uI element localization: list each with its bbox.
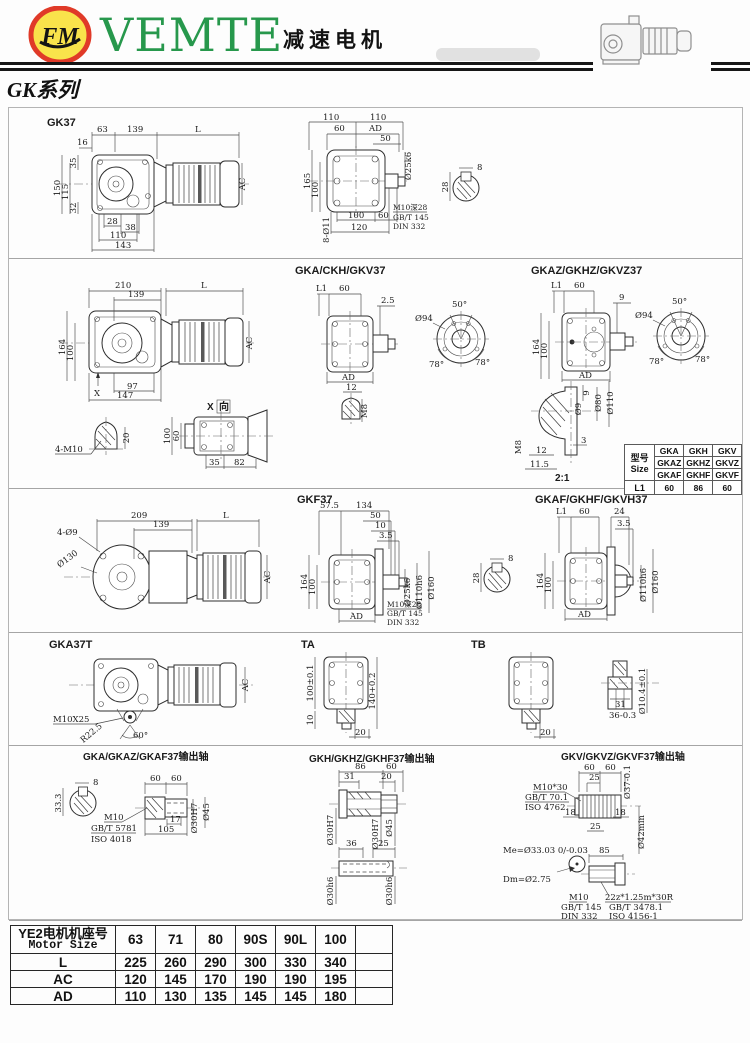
- gkaz37-front-view: L1 60 9 164 100 AD: [532, 281, 637, 382]
- note: M10: [104, 813, 124, 823]
- table-row: AD 110 130 135 145 145 180: [11, 988, 393, 1005]
- dim: 60: [605, 763, 616, 773]
- dim: 33.3: [54, 794, 64, 813]
- dim: 8-Ø11: [321, 217, 332, 243]
- drawing-title: GKA/GKAZ/GKAF37输出轴: [83, 750, 209, 763]
- dim: Ø9: [573, 403, 584, 415]
- dim: Ø30H7: [189, 803, 200, 834]
- dim: 86: [355, 762, 366, 772]
- dim: 10: [306, 715, 316, 726]
- x-direction-view: X 向 100 60 35 82: [163, 400, 273, 469]
- value-cell: 135: [196, 988, 236, 1005]
- table-row: L 225 260 290 300 330 340: [11, 954, 393, 971]
- note: GB/T 5781: [91, 824, 137, 834]
- value-cell: 110: [116, 988, 156, 1005]
- dim: 139: [153, 520, 169, 530]
- empty-cell: [356, 926, 393, 954]
- dim: 100: [311, 182, 321, 198]
- note: M10: [569, 893, 589, 903]
- dim: 9: [582, 390, 592, 395]
- section-output-shafts: GKA/GKAZ/GKAF37输出轴 GKH/GKHZ/GKHF37输出轴 GK…: [9, 746, 742, 921]
- dim: 140+0.2: [368, 673, 378, 710]
- motor-table-header: YE2电机机座号Motor Size: [11, 926, 116, 954]
- drawing-title: GKA/CKH/GKV37: [295, 265, 385, 277]
- tb-view: 20: [509, 652, 556, 739]
- dim: 20: [381, 772, 392, 782]
- motor-size-table: YE2电机机座号Motor Size 63 71 80 90S 90L 100 …: [10, 925, 393, 1005]
- dim: AC: [238, 178, 248, 192]
- dim: 8: [508, 554, 513, 564]
- value-cell: 225: [116, 954, 156, 971]
- drawing-title: GKH/GKHZ/GKHF37输出轴: [309, 752, 435, 765]
- dim: 4-Ø9: [57, 527, 78, 538]
- shaft-a-drawing: 8 33.3 60 60 17 105 Ø30H7 Ø45 M10: [54, 774, 212, 845]
- motor-size-col: 100: [316, 926, 356, 954]
- dim: 50°: [452, 300, 467, 310]
- dim: 100: [348, 211, 364, 221]
- dim: 3: [581, 436, 586, 446]
- drawings-frame: GK37 63 139 L: [8, 107, 743, 920]
- dim: 100: [308, 579, 318, 595]
- dim: R22.5: [79, 721, 105, 745]
- drawing-title: GKAZ/GKHZ/GKVZ37: [531, 265, 642, 277]
- dim: 12: [536, 446, 547, 456]
- dim: 50°: [672, 297, 687, 307]
- size-cell: GKA: [655, 445, 684, 457]
- dim: Ø30h6: [384, 877, 395, 906]
- dim: Ø25k6: [403, 152, 414, 180]
- value-cell: 290: [196, 954, 236, 971]
- size-cell: GKHZ: [684, 457, 713, 469]
- dim: Ø80: [593, 394, 604, 412]
- dim: Ø30h6: [325, 877, 336, 906]
- dim: AC: [263, 571, 273, 585]
- dim: 25: [589, 773, 600, 783]
- dim: Ø45: [201, 803, 212, 821]
- view-label: X: [207, 402, 214, 413]
- dim: AD: [577, 610, 591, 620]
- dim: Ø160: [426, 576, 437, 599]
- dim: 78°: [649, 357, 664, 367]
- dim: 35: [209, 458, 220, 468]
- dim: 38: [125, 223, 136, 233]
- value-cell: 300: [236, 954, 276, 971]
- note: ISO 4156-1: [609, 912, 658, 921]
- dim: 28: [441, 182, 451, 193]
- dim: 35: [69, 158, 79, 169]
- drawing-title: TA: [301, 639, 315, 651]
- note: GB/T 145: [393, 213, 429, 222]
- note: Dm=Ø2.75: [503, 874, 551, 885]
- dim: 60: [584, 763, 595, 773]
- gkf37-flange-view: 57.5 134 50 10 3.5 Ø25k6 Ø110h6 Ø160 164…: [300, 501, 437, 627]
- dim: 20: [540, 728, 551, 738]
- note: GB/T 70.1: [525, 793, 568, 803]
- size-cell: GKVZ: [713, 457, 742, 469]
- dim: AD: [341, 373, 355, 383]
- brand-name: VEMTE: [100, 8, 283, 62]
- dim: AD: [368, 124, 382, 134]
- dim: Ø30H7: [325, 815, 336, 846]
- dim: 60: [150, 774, 161, 784]
- drawing-title: GKA37T: [49, 639, 93, 651]
- dim: 50: [380, 134, 391, 144]
- motor-size-col: 90S: [236, 926, 276, 954]
- dim: 147: [117, 391, 133, 401]
- dim: M10X25: [53, 715, 89, 725]
- size-cell: GKHF: [684, 469, 713, 481]
- note: Me=Ø33.03 0/-0.03: [503, 845, 588, 856]
- dim: 50: [370, 511, 381, 521]
- motor-size-col: 90L: [276, 926, 316, 954]
- dim: M8: [514, 440, 524, 454]
- dim: 115: [61, 184, 71, 200]
- empty-cell: [356, 971, 393, 988]
- dim: Ø130: [55, 548, 80, 571]
- dim: 11.5: [530, 460, 549, 470]
- dim: L1: [556, 507, 567, 517]
- gka37t-side-view: AC M10X25 R22.5 60°: [53, 659, 255, 745]
- dim: Ø110h6: [638, 568, 649, 602]
- dim: Ø110: [605, 391, 616, 414]
- ta-view: 100±0.1 10 140+0.2 20: [306, 652, 378, 739]
- dim: X: [94, 389, 101, 399]
- brand-logo: FM: [28, 6, 92, 64]
- dim: Ø10.4±0.1: [637, 668, 648, 715]
- dim: Ø42min: [636, 814, 647, 849]
- dim: 8: [93, 778, 98, 788]
- note: M10*30: [533, 783, 568, 793]
- series-title: GK系列: [7, 74, 78, 104]
- row-label: AD: [11, 988, 116, 1005]
- value-cell: 145: [156, 971, 196, 988]
- dim: 105: [158, 825, 174, 835]
- dim: AD: [349, 612, 363, 622]
- value-cell: 170: [196, 971, 236, 988]
- gka37-bolt-ring-view: Ø94 50° 78° 78°: [415, 300, 490, 370]
- dim: AD: [578, 371, 592, 381]
- gk37-key-section: 8 28: [441, 163, 482, 201]
- dim: Ø94: [635, 310, 653, 321]
- value-cell: 145: [276, 988, 316, 1005]
- dim: 25: [378, 839, 389, 849]
- row-label: AC: [11, 971, 116, 988]
- m8-plug-detail: 12 M8: [342, 383, 370, 425]
- dim: L: [201, 281, 207, 291]
- dim: 85: [599, 846, 610, 856]
- scan-smudge: [436, 48, 540, 61]
- note: DIN 332: [387, 618, 419, 627]
- dim: 100±0.1: [306, 665, 316, 702]
- gkaz37-bolt-ring-view: Ø94 50° 78° 78°: [635, 297, 710, 367]
- note: M10深28: [393, 203, 427, 212]
- motor-size-col: 80: [196, 926, 236, 954]
- section-gka37: GKA/CKH/GKV37 GKAZ/GKHZ/GKVZ37 210: [9, 259, 742, 489]
- dim: 139: [128, 290, 144, 300]
- value-cell: 195: [316, 971, 356, 988]
- size-table: 型号Size GKAGKHGKV GKAZGKHZGKVZ GKAFGKHFGK…: [624, 444, 742, 495]
- gk37-front-view: 110 110 60 AD 50 Ø25k6 165 100 8-Ø11 100…: [303, 113, 429, 243]
- dim: M8: [360, 404, 370, 418]
- value-cell: 190: [236, 971, 276, 988]
- size-cell: GKH: [684, 445, 713, 457]
- dim: 110: [370, 113, 386, 123]
- doc-title: 减速电机: [283, 24, 387, 54]
- dim: 24: [614, 507, 625, 517]
- drawing-title: GKV/GKVZ/GKVF37输出轴: [561, 750, 685, 763]
- dim: Ø94: [415, 313, 433, 324]
- dim: 20: [122, 433, 132, 444]
- dim: 60: [339, 284, 350, 294]
- gkf37-key-section: 8 28: [472, 554, 513, 592]
- view-label: 向: [219, 400, 229, 413]
- gka37-side-view: 210 139 L 164 100 97 147 X AC: [58, 281, 255, 402]
- size-cell: GKVF: [713, 469, 742, 481]
- dim: 31: [615, 700, 626, 710]
- dim: 36: [346, 839, 357, 849]
- drawing-title: TB: [471, 639, 486, 651]
- row-label: L: [11, 954, 116, 971]
- dim: 12: [346, 383, 357, 393]
- dim: 100: [540, 343, 550, 359]
- dim: 78°: [429, 360, 444, 370]
- size-cell: GKAF: [655, 469, 684, 481]
- dim: 20: [355, 728, 366, 738]
- gk37-side-view: 63 139 L 16 150 115 35 32 28 38 110 143 …: [53, 125, 249, 252]
- dim: 2.5: [381, 296, 395, 306]
- size-table-header: 型号Size: [625, 445, 655, 481]
- dim: 60: [574, 281, 585, 291]
- dim: Ø160: [650, 570, 661, 593]
- dim: 25: [590, 822, 601, 832]
- dim: 60: [334, 124, 345, 134]
- bushing-detail: 31 36-0.3 Ø10.4±0.1: [601, 661, 659, 721]
- dim: 63: [97, 125, 108, 135]
- section-gka37t: GKA37T TA TB AC M10X25: [9, 633, 742, 746]
- dim: L1: [551, 281, 562, 291]
- dim: 139: [127, 125, 143, 135]
- note: DIN 332: [561, 912, 598, 921]
- dim: 60: [171, 774, 182, 784]
- value-cell: 190: [276, 971, 316, 988]
- section-gk37: GK37 63 139 L: [9, 108, 742, 259]
- dim: 36-0.3: [609, 711, 636, 721]
- gkf37-side-view: 209 139 L 4-Ø9 Ø130 AC: [55, 511, 273, 609]
- dim: 9: [619, 293, 624, 303]
- note: 22z*1.25m*30R: [605, 893, 674, 903]
- dim: L: [223, 511, 229, 521]
- value-cell: 145: [236, 988, 276, 1005]
- dim: 16: [77, 138, 88, 148]
- dim: 100: [66, 345, 76, 361]
- motor-size-col: 71: [156, 926, 196, 954]
- value-cell: 180: [316, 988, 356, 1005]
- dim: 134: [356, 501, 372, 511]
- dim: 3.5: [617, 519, 631, 529]
- dim: L: [195, 125, 201, 135]
- dim: 3.5: [379, 531, 393, 541]
- dim: Ø37-0.1: [622, 765, 633, 799]
- shaft-v-drawing: 60 60 25 Ø37-0.1 18 18 25 Ø42min M10*30 …: [503, 763, 674, 921]
- dim: 8: [477, 163, 482, 173]
- drawing-title: GKAF/GKHF/GKVH37: [535, 494, 647, 506]
- dim: 60: [172, 431, 182, 442]
- dim: 4-M10: [55, 445, 83, 455]
- dim: 18: [615, 808, 626, 818]
- motor-size-col: 63: [116, 926, 156, 954]
- dim: 10: [375, 521, 386, 531]
- catalog-page: FM VEMTE 减速电机 GK系列: [0, 0, 750, 1043]
- dim: 17: [170, 815, 181, 825]
- shaft-h-drawing: 86 60 31 20 Ø30H7 Ø30H7 Ø45 36 25 Ø30h6 …: [325, 762, 409, 905]
- table-row: AC 120 145 170 190 190 195: [11, 971, 393, 988]
- dim: 32: [69, 203, 79, 214]
- dim: 100: [544, 577, 554, 593]
- section-gkf37: GKF37 GKAF/GKHF/GKVH37 209 139: [9, 489, 742, 633]
- dim: 28: [472, 573, 482, 584]
- value-cell: 260: [156, 954, 196, 971]
- value-cell: 330: [276, 954, 316, 971]
- note: ISO 4018: [91, 835, 131, 845]
- gearbox-photo: [593, 8, 711, 72]
- note: M10深28: [387, 600, 421, 609]
- note: GB/T 145: [387, 609, 423, 618]
- dim: 60: [579, 507, 590, 517]
- dim: 209: [131, 511, 147, 521]
- dim: AC: [245, 337, 255, 351]
- empty-cell: [356, 954, 393, 971]
- dim: 78°: [695, 355, 710, 365]
- dim: AC: [241, 679, 251, 693]
- drawing-title: GK37: [47, 117, 76, 129]
- gkaz37-section-detail: 9 Ø9 Ø80 Ø110 M8 12 11.5 3 2:1: [514, 381, 616, 484]
- dim: 18: [565, 808, 576, 818]
- value-cell: 120: [116, 971, 156, 988]
- dim: 78°: [475, 358, 490, 368]
- dim: 143: [115, 241, 131, 251]
- value-cell: 130: [156, 988, 196, 1005]
- empty-cell: [356, 988, 393, 1005]
- value-cell: 340: [316, 954, 356, 971]
- size-cell: GKV: [713, 445, 742, 457]
- dim: 57.5: [320, 501, 339, 511]
- dim: 60: [378, 211, 389, 221]
- dim: 120: [351, 223, 367, 233]
- dim: Ø45: [384, 819, 395, 837]
- gkaf37-front-view: L1 60 24 3.5 164 100 Ø110h6 Ø160 AD: [536, 507, 661, 621]
- gka37-front-view: L1 60 2.5 AD: [316, 284, 401, 384]
- eyebolt-detail: 4-M10 20: [55, 417, 132, 455]
- dim: 60: [386, 762, 397, 772]
- dim: 31: [344, 772, 355, 782]
- note: DIN 332: [393, 222, 425, 231]
- size-cell: GKAZ: [655, 457, 684, 469]
- note: ISO 4762: [525, 803, 565, 813]
- dim: 82: [234, 458, 245, 468]
- detail-scale: 2:1: [555, 473, 570, 484]
- dim: 28: [107, 217, 118, 227]
- dim: L1: [316, 284, 327, 294]
- dim: 110: [110, 231, 126, 241]
- dim: 110: [323, 113, 339, 123]
